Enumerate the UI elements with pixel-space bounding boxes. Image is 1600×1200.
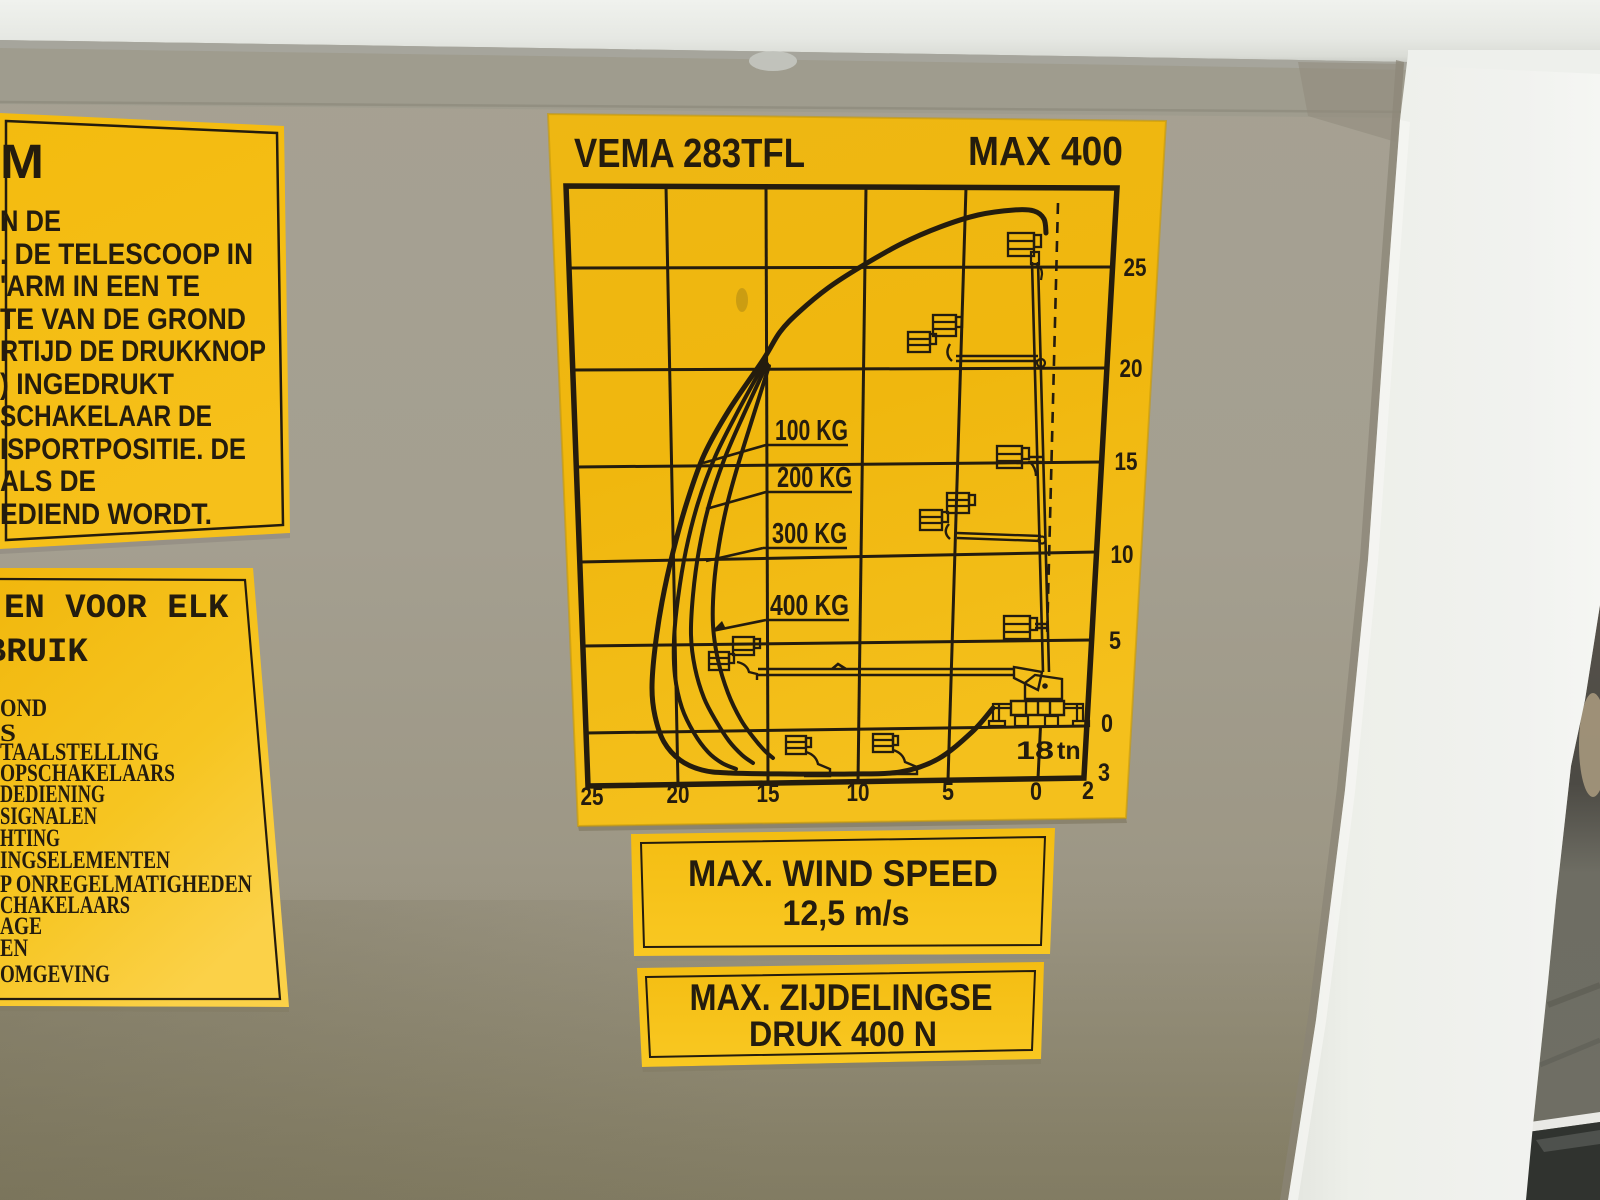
svg-text:3: 3 xyxy=(1098,759,1110,787)
svg-text:200 KG: 200 KG xyxy=(777,462,852,494)
svg-text:MAX. ZIJDELINGSE: MAX. ZIJDELINGSE xyxy=(690,977,993,1018)
svg-text:ALS DE: ALS DE xyxy=(0,465,96,498)
svg-text:ISPORTPOSITIE. DE: ISPORTPOSITIE. DE xyxy=(0,433,246,466)
svg-text:5: 5 xyxy=(942,778,954,806)
svg-text:15: 15 xyxy=(1115,448,1138,476)
svg-text:TE VAN DE GROND: TE VAN DE GROND xyxy=(0,303,246,336)
svg-text:2: 2 xyxy=(1082,777,1094,805)
svg-text:20: 20 xyxy=(1120,355,1143,383)
svg-text:10: 10 xyxy=(1111,541,1134,569)
svg-text:tn: tn xyxy=(1057,737,1081,765)
svg-text:OMGEVING: OMGEVING xyxy=(0,961,110,988)
svg-text:20: 20 xyxy=(667,781,690,809)
svg-text:MAX. WIND SPEED: MAX. WIND SPEED xyxy=(688,853,998,894)
svg-text:EDIEND WORDT.: EDIEND WORDT. xyxy=(0,498,212,531)
svg-text:25: 25 xyxy=(1124,254,1147,282)
svg-text:. DE TELESCOOP IN: . DE TELESCOOP IN xyxy=(0,238,253,271)
svg-text:) INGEDRUKT: ) INGEDRUKT xyxy=(0,368,174,401)
svg-text:10: 10 xyxy=(847,779,870,807)
svg-text:300 KG: 300 KG xyxy=(772,518,847,550)
svg-text:0: 0 xyxy=(1030,778,1042,806)
svg-text:GEBRUIK: GEBRUIK xyxy=(0,634,88,672)
svg-text:SCHAKELAAR DE: SCHAKELAAR DE xyxy=(0,400,212,433)
svg-text:EN VOOR ELK: EN VOOR ELK xyxy=(4,590,229,628)
svg-text:25: 25 xyxy=(581,783,604,811)
svg-text:RTIJD DE DRUKKNOP: RTIJD DE DRUKKNOP xyxy=(0,335,266,368)
svg-text:N DE: N DE xyxy=(0,205,61,238)
svg-text:100 KG: 100 KG xyxy=(775,415,848,447)
svg-text:18: 18 xyxy=(1016,737,1054,765)
svg-text:12,5 m/s: 12,5 m/s xyxy=(783,894,910,933)
svg-text:0: 0 xyxy=(1101,710,1113,738)
svg-text:OND: OND xyxy=(0,695,47,722)
svg-text:MAX 400: MAX 400 xyxy=(968,128,1123,174)
svg-text:VEMA 283TFL: VEMA 283TFL xyxy=(574,130,805,176)
svg-text:M: M xyxy=(0,136,44,189)
svg-text:INGSELEMENTEN: INGSELEMENTEN xyxy=(0,847,170,874)
svg-text:DRUK 400 N: DRUK 400 N xyxy=(749,1015,937,1054)
svg-text:5: 5 xyxy=(1109,627,1121,655)
svg-text:15: 15 xyxy=(757,780,780,808)
svg-text:'ARM IN EEN TE: 'ARM IN EEN TE xyxy=(0,270,200,303)
svg-text:EN: EN xyxy=(0,935,28,962)
svg-text:400 KG: 400 KG xyxy=(770,590,849,622)
